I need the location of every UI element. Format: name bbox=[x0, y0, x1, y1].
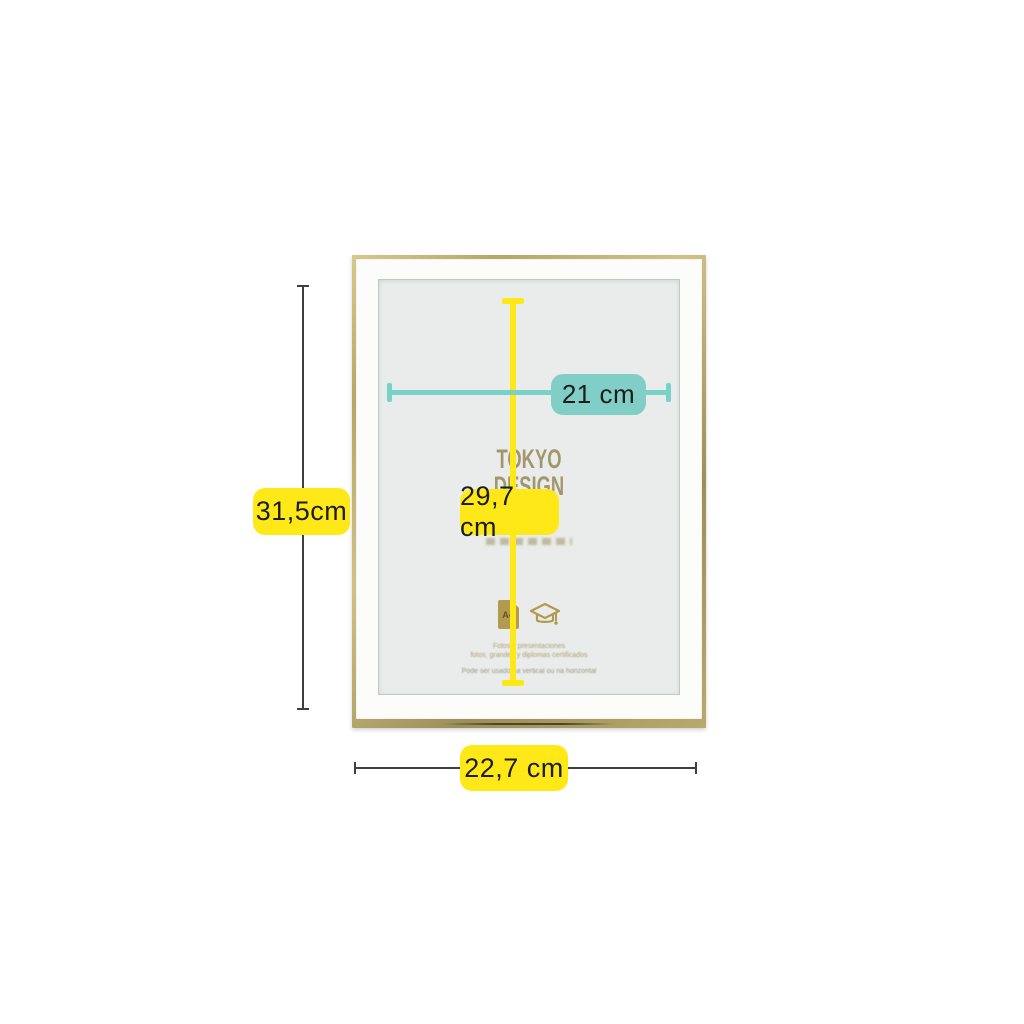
outer-height-badge: 31,5cm bbox=[253, 488, 350, 535]
insert-caption-text: Fotos y presentaciones fotos, grandes y … bbox=[379, 642, 679, 660]
product-dimension-diagram: TOKYO DESIGN A4 Fotos y bbox=[0, 0, 1024, 1024]
insert-icons-row: A4 bbox=[379, 600, 679, 629]
caption-line-1: Fotos y presentaciones bbox=[379, 642, 679, 651]
inner-width-badge: 21 cm bbox=[551, 374, 646, 415]
graduation-cap-icon bbox=[529, 602, 561, 629]
caption-line-2: fotos, grandes y diplomas certificados bbox=[379, 651, 679, 660]
inner-height-badge: 29,7 cm bbox=[460, 489, 559, 535]
caption-line-3: Pode ser usado na vertical ou na horizon… bbox=[379, 668, 679, 675]
outer-width-badge: 22,7 cm bbox=[460, 745, 568, 791]
brand-line-tokyo: TOKYO bbox=[427, 446, 631, 473]
